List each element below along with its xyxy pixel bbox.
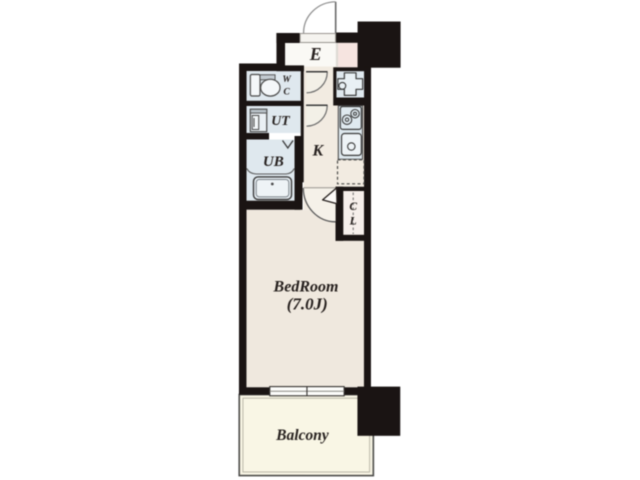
- svg-text:Balcony: Balcony: [275, 427, 329, 444]
- svg-text:C: C: [349, 201, 357, 213]
- svg-text:E: E: [309, 44, 322, 64]
- svg-text:BedRoom: BedRoom: [273, 278, 339, 295]
- svg-text:K: K: [311, 143, 324, 160]
- svg-text:C: C: [283, 87, 290, 97]
- svg-text:(7.0J): (7.0J): [287, 294, 328, 313]
- svg-text:UT: UT: [271, 114, 291, 129]
- svg-text:UB: UB: [263, 154, 284, 170]
- svg-text:L: L: [349, 216, 357, 228]
- svg-text:W: W: [282, 75, 291, 85]
